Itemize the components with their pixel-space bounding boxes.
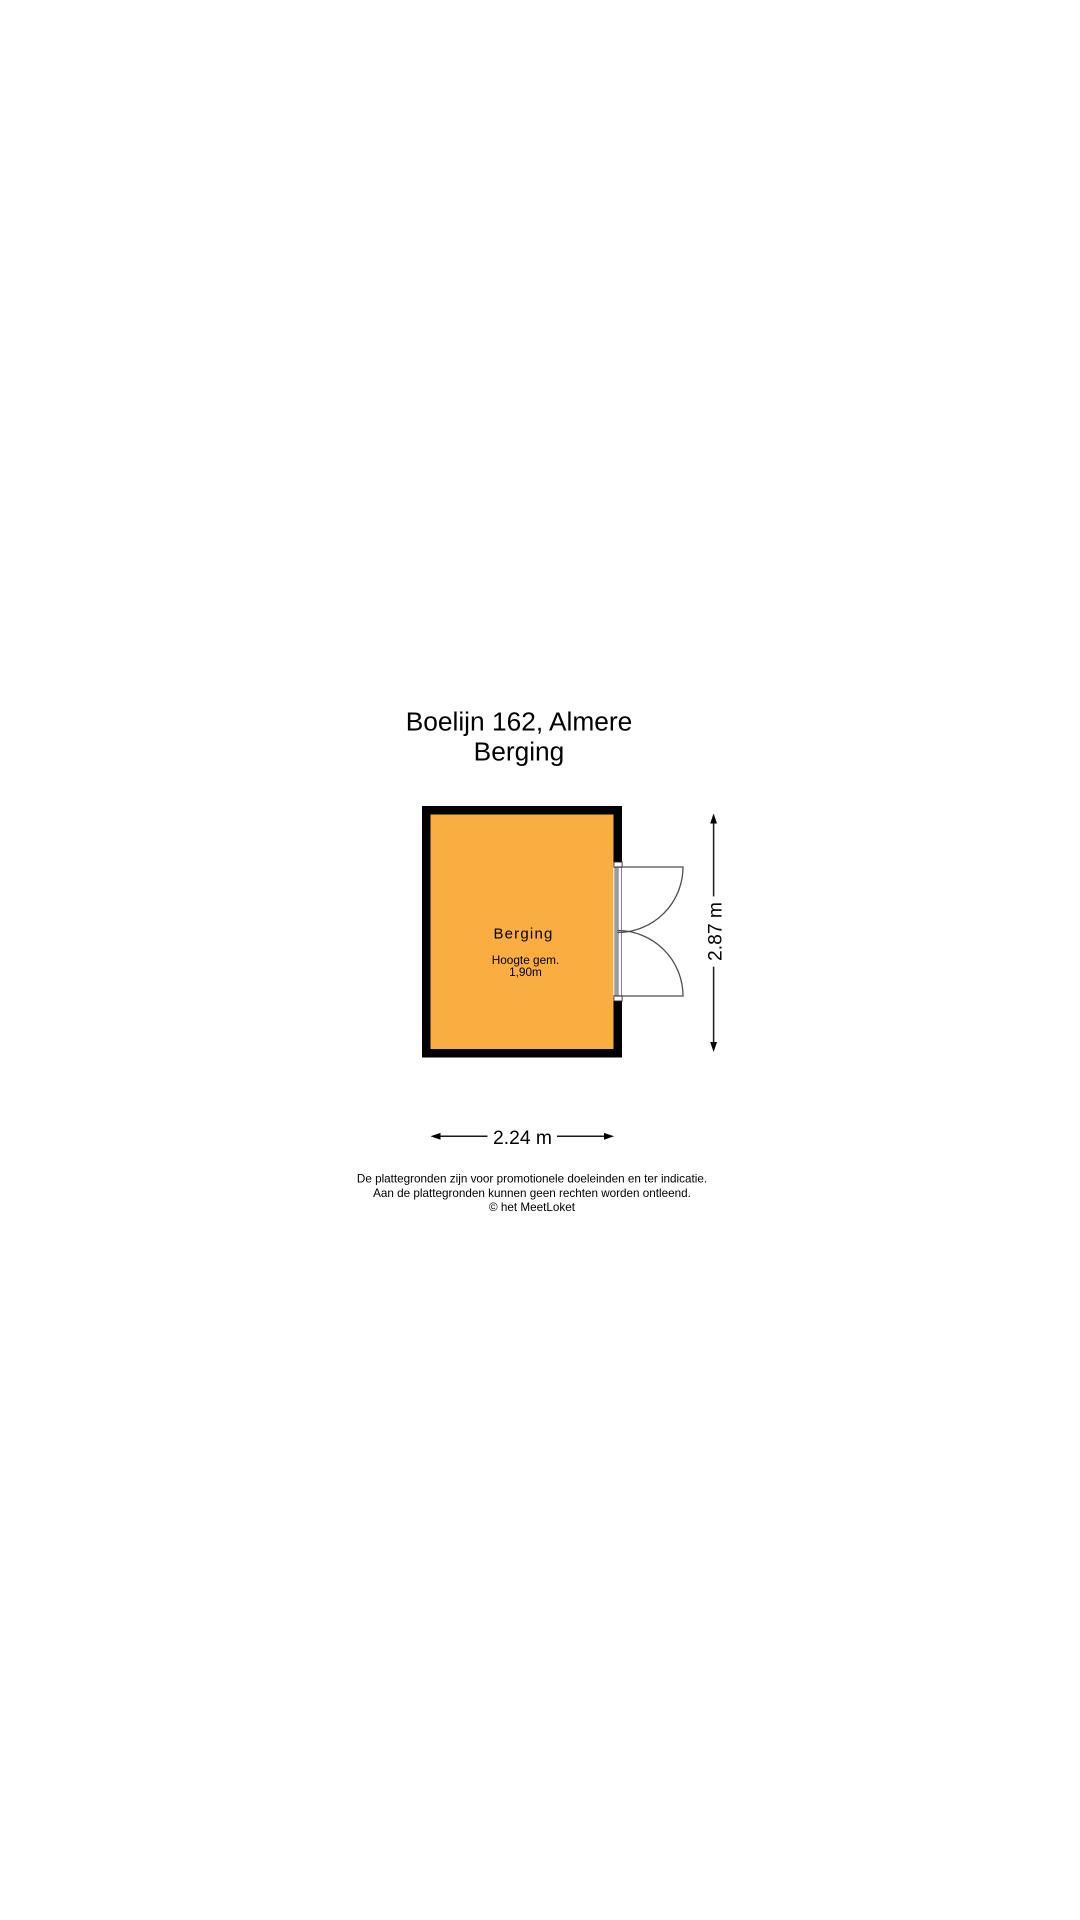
svg-text:De plattegronden zijn voor pro: De plattegronden zijn voor promotionele … <box>357 1172 707 1185</box>
svg-text:© het MeetLoket: © het MeetLoket <box>489 1201 576 1214</box>
svg-text:Berging: Berging <box>474 736 565 766</box>
svg-text:1,90m: 1,90m <box>509 965 542 979</box>
svg-text:Berging: Berging <box>493 926 553 943</box>
svg-text:Aan de plattegronden kunnen ge: Aan de plattegronden kunnen geen rechten… <box>373 1187 691 1200</box>
svg-text:Boelijn 162, Almere: Boelijn 162, Almere <box>406 706 633 736</box>
svg-text:2.87 m: 2.87 m <box>705 902 726 961</box>
svg-text:2.24 m: 2.24 m <box>493 1128 552 1149</box>
